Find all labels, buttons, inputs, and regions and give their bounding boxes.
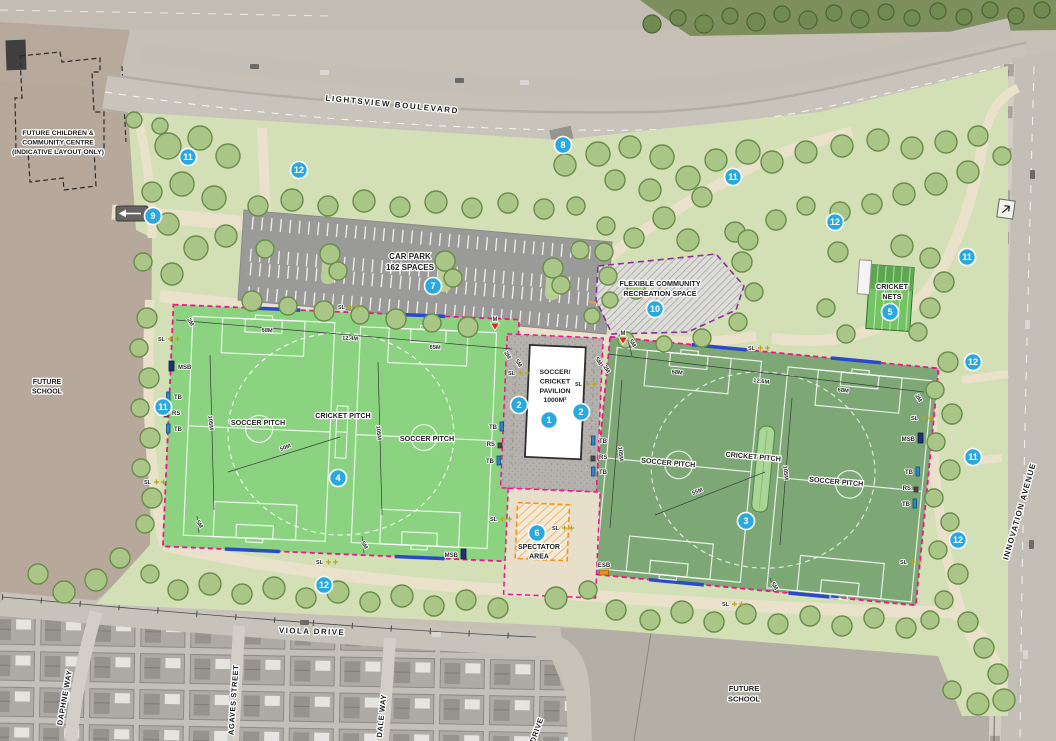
tree-icon: [745, 283, 763, 301]
area-label-future-school-south: FUTURESCHOOL: [728, 684, 761, 703]
site-plan-svg: MSBTBRSTBTBRSTBTBRSTBMSBTBRSTBMSBESB SLS…: [0, 0, 1056, 741]
marker-number: 4: [335, 473, 340, 483]
equipment-label-text: ESB: [598, 563, 611, 569]
tree-icon: [831, 135, 853, 157]
tree-icon: [423, 314, 441, 332]
tree-icon: [140, 428, 160, 448]
equipment-label-text: TB: [174, 427, 183, 433]
equipment-label-text: RS: [172, 411, 180, 417]
tree-icon: [131, 399, 149, 417]
dimension-label: 68M: [261, 328, 273, 335]
tree-icon: [929, 541, 947, 559]
marker-6: 6: [529, 525, 546, 542]
tree-icon: [184, 236, 208, 260]
tree-icon: [458, 317, 478, 337]
tree-icon: [142, 488, 162, 508]
equipment-label-text: TB: [905, 470, 914, 476]
tree-icon: [958, 612, 978, 632]
equipment-label-text: MSB: [445, 553, 459, 559]
marker-number: 2: [516, 400, 521, 410]
tree-icon: [142, 182, 162, 202]
tree-icon: [938, 352, 958, 372]
equipment-label-text: MSB: [902, 437, 916, 443]
bush-icon: [643, 15, 661, 33]
marker-number: 12: [830, 217, 840, 227]
light-label: SL: [900, 560, 908, 566]
car-icon: [455, 78, 464, 83]
tree-icon: [942, 404, 962, 424]
marker-number: 12: [319, 580, 329, 590]
tree-icon: [920, 248, 940, 268]
equipment-label-text: TB: [599, 439, 608, 445]
tree-icon: [867, 129, 889, 151]
tree-icon: [656, 336, 672, 352]
tree-icon: [653, 207, 675, 229]
tree-icon: [232, 584, 252, 604]
tree-icon: [216, 144, 240, 168]
area-label-line: FUTURE: [33, 379, 62, 386]
bush-icon: [956, 9, 972, 25]
msb-icon: [461, 549, 466, 559]
equipment-label-text: TB: [174, 395, 183, 401]
area-label-future-children-community-centre: FUTURE CHILDREN &COMMUNITY CENTRE(INDICA…: [12, 130, 104, 156]
sports-field-west: [163, 305, 519, 562]
tree-icon: [444, 269, 462, 287]
cricket-nets-roof: [857, 260, 871, 295]
area-label-flexible-community-recreation-space: FLEXIBLE COMMUNITYRECREATION SPACE: [619, 279, 700, 298]
car-icon: [250, 64, 259, 69]
tree-icon: [498, 193, 518, 213]
tree-icon: [141, 565, 159, 583]
marker-number: 12: [294, 165, 304, 175]
marker-8: 8: [555, 137, 572, 154]
tree-icon: [650, 145, 674, 169]
marker-12: 12: [316, 577, 333, 594]
marker-5: 5: [882, 304, 899, 321]
light-label: SL: [911, 416, 919, 422]
tree-icon: [921, 611, 939, 629]
marker-12: 12: [950, 532, 967, 549]
area-label-line: CRICKET: [540, 378, 571, 385]
equipment-rs: RS: [903, 486, 918, 492]
tree-icon: [545, 587, 567, 609]
tree-icon: [974, 638, 994, 658]
tree-icon: [424, 596, 444, 616]
tree-icon: [738, 230, 758, 250]
tree-icon: [170, 172, 194, 196]
tree-icon: [202, 186, 226, 210]
equipment-label-text: MSB: [178, 365, 192, 371]
site-plan-canvas: MSBTBRSTBTBRSTBTBRSTBMSBTBRSTBMSBESB SLS…: [0, 0, 1056, 741]
marker-12: 12: [827, 214, 844, 231]
tree-icon: [136, 515, 154, 533]
bush-icon: [670, 10, 686, 26]
tree-icon: [795, 141, 817, 163]
car-icon: [1023, 650, 1028, 659]
marker-11: 11: [180, 149, 197, 166]
light-label: SL: [338, 305, 346, 311]
area-label-line: FUTURE: [729, 684, 759, 693]
tree-icon: [761, 151, 783, 173]
area-label-soccer-pitch-west-2: SOCCER PITCH: [400, 434, 454, 443]
marker-11: 11: [959, 249, 976, 266]
tree-icon: [968, 126, 988, 146]
marker-number: 12: [968, 357, 978, 367]
light-label: SL: [722, 602, 730, 608]
marker-number: 11: [158, 402, 168, 412]
bush-icon: [982, 2, 998, 18]
tree-icon: [390, 197, 410, 217]
tree-icon: [948, 564, 968, 584]
tree-icon: [456, 590, 476, 610]
tree-icon: [168, 580, 188, 600]
area-label-line: CAR PARK: [389, 252, 431, 261]
monument-label: M: [621, 331, 626, 337]
tree-icon: [314, 301, 334, 321]
equipment-label-text: TB: [486, 459, 495, 465]
tree-icon: [110, 548, 130, 568]
tree-icon: [391, 585, 413, 607]
tb-icon: [592, 436, 596, 445]
tree-icon: [263, 577, 285, 599]
tree-icon: [862, 194, 882, 214]
tree-icon: [941, 513, 959, 531]
area-label-line: FLEXIBLE COMMUNITY: [619, 279, 700, 288]
area-label-line: FUTURE CHILDREN &: [22, 130, 93, 137]
light-label: SL: [508, 371, 516, 377]
marker-number: 12: [953, 535, 963, 545]
tree-icon: [704, 612, 724, 632]
marker-11: 11: [155, 399, 172, 416]
tree-icon: [864, 608, 884, 628]
bush-icon: [722, 8, 738, 24]
marker-number: 5: [887, 307, 892, 317]
area-label-line: 1000M²: [543, 397, 567, 404]
equipment-rs: RS: [487, 442, 502, 448]
tree-icon: [891, 235, 913, 257]
tree-icon: [584, 308, 600, 324]
tree-icon: [800, 606, 820, 626]
light-label: SL: [316, 560, 324, 566]
area-label-line: SPECTATOR: [518, 544, 560, 551]
equipment-label-text: RS: [903, 486, 911, 492]
park-gate: [116, 206, 148, 221]
tree-icon: [925, 173, 947, 195]
tree-icon: [935, 131, 957, 153]
dimension-label: 105M: [781, 465, 788, 480]
tree-icon: [215, 225, 237, 247]
marker-10: 10: [647, 301, 664, 318]
tree-icon: [993, 689, 1015, 711]
tree-icon: [832, 616, 852, 636]
tree-icon: [567, 197, 585, 215]
area-label-line: NETS: [882, 292, 901, 301]
tree-icon: [248, 196, 268, 216]
sports-field-east: [587, 337, 938, 607]
tb-icon: [497, 456, 501, 465]
tree-icon: [597, 217, 615, 235]
dimension-label: 105M: [374, 425, 381, 440]
tree-icon: [386, 309, 406, 329]
tb-icon: [500, 422, 504, 431]
area-label-line: 162 SPACES: [386, 263, 435, 272]
tree-icon: [552, 276, 570, 294]
area-label-line: AREA: [529, 554, 549, 561]
area-label-line: PAVILION: [539, 388, 570, 395]
light-label: SL: [552, 526, 560, 532]
tree-icon: [943, 681, 961, 699]
tree-icon: [351, 306, 369, 324]
monument-label: M: [493, 317, 498, 323]
tree-icon: [639, 179, 661, 201]
tree-icon: [693, 329, 711, 347]
tree-icon: [606, 600, 626, 620]
bush-icon: [851, 10, 869, 28]
car-icon: [432, 632, 441, 637]
tree-icon: [462, 198, 482, 218]
car-icon: [520, 80, 529, 85]
tree-icon: [155, 133, 181, 159]
marker-1: 1: [541, 412, 558, 429]
tree-icon: [242, 291, 262, 311]
marker-2: 2: [573, 404, 590, 421]
esb-icon: [600, 570, 609, 575]
area-label-line: CRICKET: [876, 282, 909, 291]
tree-icon: [28, 564, 48, 584]
tree-icon: [676, 166, 700, 190]
marker-12: 12: [291, 162, 308, 179]
area-label-line: RECREATION SPACE: [623, 289, 696, 298]
area-label-line: COMMUNITY CENTRE: [22, 139, 94, 146]
tree-icon: [134, 253, 152, 271]
msb-icon: [169, 361, 174, 371]
tree-icon: [296, 588, 316, 608]
marker-number: 9: [150, 211, 155, 221]
tree-icon: [935, 591, 953, 609]
car-icon: [1025, 320, 1030, 329]
rs-icon: [498, 443, 502, 448]
tree-icon: [605, 170, 625, 190]
tree-icon: [837, 325, 855, 343]
tree-icon: [925, 489, 943, 507]
tree-icon: [599, 267, 617, 285]
tree-icon: [967, 693, 989, 715]
marker-number: 11: [968, 452, 978, 462]
car-icon: [320, 70, 329, 75]
tree-icon: [199, 573, 221, 595]
area-label-soccer-pitch-west-1: SOCCER PITCH: [231, 418, 285, 427]
tree-icon: [797, 197, 815, 215]
tree-icon: [488, 598, 508, 618]
tree-icon: [85, 569, 107, 591]
area-label-line: SOCCER/: [540, 369, 571, 376]
area-label-cricket-pitch-west: CRICKET PITCH: [315, 411, 371, 420]
tree-icon: [926, 381, 944, 399]
tree-icon: [132, 459, 150, 477]
tree-icon: [279, 297, 297, 315]
tree-icon: [893, 183, 915, 205]
car-icon: [1030, 170, 1035, 179]
tree-icon: [139, 368, 159, 388]
car-icon: [1029, 540, 1034, 549]
tb-icon: [913, 499, 917, 508]
light-label: SL: [748, 346, 756, 352]
building-block: [5, 40, 26, 71]
tree-icon: [619, 136, 641, 158]
tree-icon: [161, 263, 183, 285]
equipment-label-text: RS: [599, 455, 607, 461]
tree-icon: [705, 149, 727, 171]
equipment-label-text: TB: [902, 502, 911, 508]
marker-9: 9: [145, 208, 162, 225]
tree-icon: [957, 161, 979, 183]
rs-icon: [591, 456, 595, 461]
tree-icon: [353, 190, 375, 212]
tree-icon: [671, 601, 693, 623]
tree-icon: [736, 140, 760, 164]
light-label: SL: [158, 337, 166, 343]
marker-number: 11: [728, 172, 738, 182]
car-icon: [300, 620, 309, 625]
marker-11: 11: [965, 449, 982, 466]
bush-icon: [1008, 8, 1024, 24]
tb-icon: [916, 467, 920, 476]
bush-icon: [826, 5, 842, 21]
tree-icon: [927, 433, 945, 451]
tree-icon: [320, 244, 340, 264]
marker-2: 2: [511, 397, 528, 414]
sign-box: [997, 199, 1015, 219]
marker-number: 11: [183, 152, 193, 162]
marker-3: 3: [738, 513, 755, 530]
tree-icon: [281, 189, 303, 211]
tree-icon: [729, 313, 747, 331]
marker-number: 6: [534, 528, 539, 538]
tree-icon: [256, 240, 274, 258]
tree-icon: [534, 199, 554, 219]
equipment-rs: RS: [591, 455, 607, 461]
tree-icon: [934, 272, 954, 292]
tree-icon: [360, 592, 380, 612]
light-label: SL: [575, 382, 583, 388]
tree-icon: [993, 147, 1011, 165]
bush-icon: [904, 10, 920, 26]
equipment-label-text: TB: [489, 425, 498, 431]
tree-icon: [188, 126, 212, 150]
area-label-line: SOCCER PITCH: [231, 418, 285, 427]
marker-number: 2: [578, 407, 583, 417]
marker-number: 7: [430, 281, 435, 291]
area-label-line: CRICKET PITCH: [315, 411, 371, 420]
tree-icon: [736, 604, 756, 624]
tree-icon: [329, 262, 347, 280]
dimension-label: 105M: [206, 415, 213, 430]
tree-icon: [766, 210, 786, 230]
tb-icon: [592, 467, 596, 476]
marker-number: 1: [546, 415, 551, 425]
tree-icon: [828, 242, 848, 262]
marker-number: 11: [962, 252, 972, 262]
light-label: SL: [490, 517, 498, 523]
tree-icon: [554, 154, 576, 176]
tree-icon: [817, 299, 835, 317]
tree-icon: [435, 251, 455, 271]
bush-icon: [799, 11, 817, 29]
equipment-label-text: RS: [487, 442, 495, 448]
tree-icon: [126, 112, 142, 128]
marker-number: 10: [650, 304, 660, 314]
tree-icon: [732, 252, 752, 272]
bush-icon: [1034, 2, 1050, 18]
tree-icon: [318, 196, 338, 216]
tree-icon: [896, 618, 916, 638]
bush-icon: [774, 6, 790, 22]
marker-7: 7: [425, 278, 442, 295]
marker-4: 4: [330, 470, 347, 487]
dimension-label: 65M: [429, 345, 441, 352]
tree-icon: [692, 187, 712, 207]
tree-icon: [988, 664, 1008, 684]
area-label-line: SCHOOL: [32, 389, 63, 396]
tree-icon: [425, 191, 447, 213]
area-label-line: SCHOOL: [728, 694, 761, 703]
tb-icon: [167, 424, 171, 433]
dimension-label: 105M: [616, 446, 623, 461]
tree-icon: [579, 581, 597, 599]
tree-icon: [624, 228, 644, 248]
equipment-label-text: TB: [599, 470, 608, 476]
tree-icon: [137, 308, 157, 328]
tree-icon: [130, 339, 148, 357]
tree-icon: [543, 258, 563, 278]
tree-icon: [909, 323, 927, 341]
tree-icon: [602, 292, 618, 308]
marker-number: 8: [560, 140, 565, 150]
tree-icon: [768, 614, 788, 634]
dimension-label: 12.4M: [342, 335, 359, 342]
bush-icon: [878, 4, 894, 20]
marker-12: 12: [965, 354, 982, 371]
area-label-line: (INDICATIVE LAYOUT ONLY): [12, 149, 104, 156]
tree-icon: [640, 610, 660, 630]
msb-icon: [918, 433, 923, 443]
bush-icon: [747, 13, 765, 31]
light-label: SL: [144, 480, 152, 486]
tree-icon: [677, 229, 699, 251]
tree-icon: [571, 241, 589, 259]
bush-icon: [695, 15, 713, 33]
tree-icon: [152, 118, 168, 134]
marker-11: 11: [725, 169, 742, 186]
tree-icon: [586, 142, 610, 166]
tree-icon: [901, 137, 923, 159]
bush-icon: [930, 3, 946, 19]
rs-icon: [914, 487, 918, 492]
tree-icon: [595, 243, 613, 261]
marker-number: 3: [743, 516, 748, 526]
area-label-line: SOCCER PITCH: [400, 434, 454, 443]
tree-icon: [53, 581, 75, 603]
tree-icon: [920, 298, 940, 318]
tree-icon: [940, 460, 960, 480]
